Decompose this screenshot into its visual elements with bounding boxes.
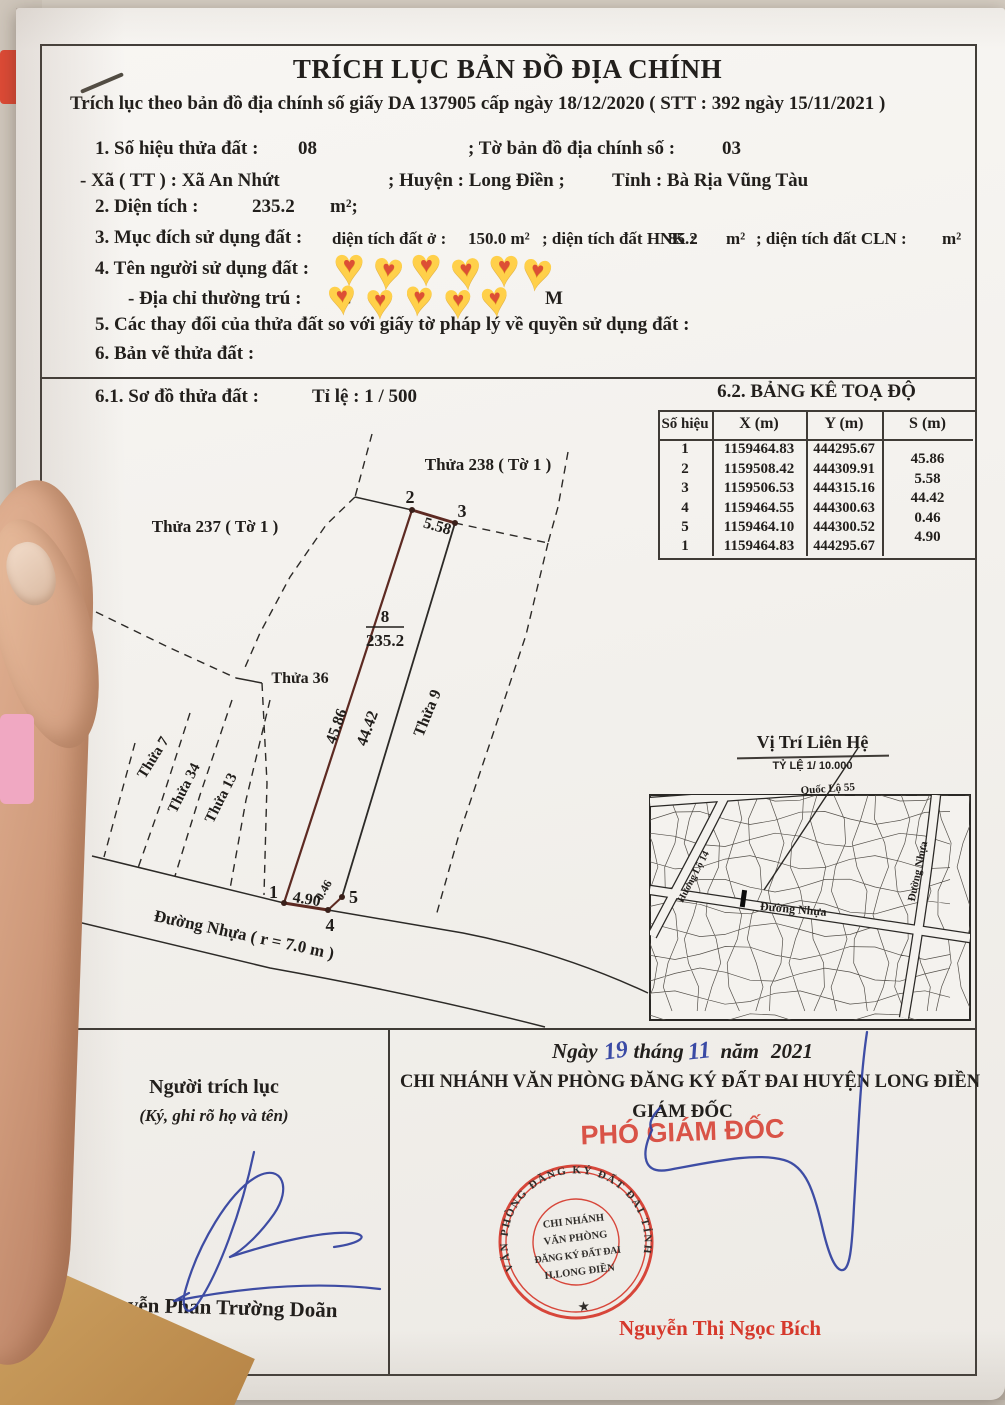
- point-label-2: 2: [406, 487, 415, 507]
- pink-object: [0, 714, 34, 804]
- field-address-label: - Địa chỉ thường trú :: [128, 288, 301, 310]
- field-province: Tỉnh : Bà Rịa Vũng Tàu: [612, 170, 808, 192]
- heart-sticker: [365, 276, 395, 326]
- hand-holding-paper: [0, 420, 94, 1365]
- table-s-value: 45.86: [882, 451, 973, 468]
- dashed-boundary-above: [355, 434, 372, 497]
- corner-segment-west: [236, 678, 262, 683]
- field-landuse-cln-label: ; diện tích đất CLN :: [756, 229, 907, 249]
- table-cell: 444315.16: [806, 480, 882, 497]
- table-cell: 1159464.55: [712, 500, 806, 517]
- heart-sticker: [477, 272, 513, 325]
- table-header-s: S (m): [882, 415, 973, 433]
- edge-length-left: 45.86: [323, 707, 351, 747]
- corner-segment-top: [355, 497, 412, 510]
- stamp-star: ★: [578, 1299, 591, 1314]
- edge-length-right: 44.42: [354, 709, 382, 749]
- field-landuse-cln-unit: m²: [942, 229, 961, 249]
- field-drawing-label: 6. Bản vẽ thửa đất :: [95, 343, 254, 365]
- signer-name: Nguyễn Thị Ngọc Bích: [480, 1316, 960, 1341]
- thumbnail: [0, 536, 63, 611]
- neighbor-thua7: Thửa 7: [135, 734, 173, 782]
- field-area-value: 235.2: [252, 196, 295, 218]
- point-label-1: 1: [269, 882, 278, 902]
- dashed-boundary-237-south: [96, 612, 236, 678]
- field-map-sheet-value: 03: [722, 138, 741, 160]
- neighbor-thua237: Thửa 237 ( Tờ 1 ): [152, 517, 279, 536]
- neighbor-thua34: Thửa 34: [165, 760, 204, 815]
- parcel-edge-left: [284, 510, 412, 903]
- neighbor-thua238: Thửa 238 ( Tờ 1 ): [425, 455, 552, 474]
- table-cell: 1159464.10: [712, 519, 806, 536]
- parcel-area: 235.2: [366, 631, 404, 650]
- table-cell: 1159464.83: [712, 538, 806, 555]
- deputy-director-signature: [560, 1020, 900, 1290]
- table-cell: 1: [658, 538, 712, 555]
- field-district: ; Huyện : Long Điền ;: [388, 170, 565, 192]
- neighbor-thua13: Thửa 13: [202, 771, 241, 826]
- point-dot-4: [325, 907, 331, 913]
- heart-sticker: [325, 271, 359, 323]
- table-s-value: 44.42: [882, 490, 973, 507]
- field-area-unit: m²;: [330, 196, 358, 218]
- table-cell: 5: [658, 519, 712, 536]
- table-cell: 1159464.83: [712, 441, 806, 458]
- field-map-sheet-label: ; Tờ bản đồ địa chính số :: [468, 138, 675, 160]
- road-lower-edge: [78, 922, 545, 1027]
- neighbor-thua9: Thửa 9: [411, 687, 445, 739]
- field-parcel-number-label: 1. Số hiệu thửa đất :: [95, 138, 258, 160]
- location-map: Quốc Lộ 55 Hương Lộ 14 Đường Nhựa Đường …: [640, 730, 980, 1030]
- table-cell: 444300.52: [806, 519, 882, 536]
- edge-length-top: 5.58: [421, 515, 453, 539]
- table-cell: 4: [658, 500, 712, 517]
- table-cell: 444295.67: [806, 538, 882, 555]
- table-header-y: Y (m): [806, 415, 882, 433]
- point-label-5: 5: [349, 887, 358, 907]
- field-landuse-hnk-value: 85.2: [668, 229, 698, 249]
- point-label-4: 4: [326, 915, 335, 935]
- extractor-signature: [100, 1130, 420, 1320]
- table-cell: 1159508.42: [712, 461, 806, 478]
- field-landuse-label: 3. Mục đích sử dụng đất :: [95, 227, 302, 249]
- dashed-boundary-thua9: [436, 543, 548, 916]
- photo-of-document: TRÍCH LỤC BẢN ĐỒ ĐỊA CHÍNH Trích lục the…: [0, 0, 1005, 1405]
- field-owner-label: 4. Tên người sử dụng đất :: [95, 258, 309, 280]
- road-label: Đường Nhựa ( r = 7.0 m ): [152, 906, 336, 963]
- table-cell: 1: [658, 441, 712, 458]
- field-commune: - Xã ( TT ) : Xã An Nhứt: [80, 170, 280, 192]
- table-s-value: 0.46: [882, 510, 973, 527]
- table-cell: 444309.91: [806, 461, 882, 478]
- table-s-value: 4.90: [882, 529, 973, 546]
- heart-sticker: [443, 276, 473, 326]
- table-header-x: X (m): [712, 415, 806, 433]
- field-landuse-hnk-unit: m²: [726, 229, 745, 249]
- table-cell: 3: [658, 480, 712, 497]
- point-label-3: 3: [458, 501, 467, 521]
- heart-sticker: [401, 272, 436, 325]
- point-dot-2: [409, 507, 415, 513]
- table-cell: 444295.67: [806, 441, 882, 458]
- table-header-id: Số hiệu: [658, 416, 712, 433]
- table-cell: 1159506.53: [712, 480, 806, 497]
- parcel-number: 8: [381, 607, 390, 626]
- field-area-label: 2. Diện tích :: [95, 196, 198, 218]
- dashed-boundary-3-east: [455, 523, 548, 543]
- table-cell: 2: [658, 461, 712, 478]
- field-parcel-number-value: 08: [298, 138, 317, 160]
- point-dot-1: [281, 900, 287, 906]
- point-dot-5: [339, 894, 345, 900]
- table-cell: 444300.63: [806, 500, 882, 517]
- page-subtitle: Trích lục theo bản đồ địa chính số giấy …: [70, 93, 885, 115]
- table-s-value: 5.58: [882, 471, 973, 488]
- page-title: TRÍCH LỤC BẢN ĐỒ ĐỊA CHÍNH: [40, 54, 975, 85]
- neighbor-thua36: Thửa 36: [271, 670, 328, 687]
- dashed-lot-line-1: [104, 743, 135, 857]
